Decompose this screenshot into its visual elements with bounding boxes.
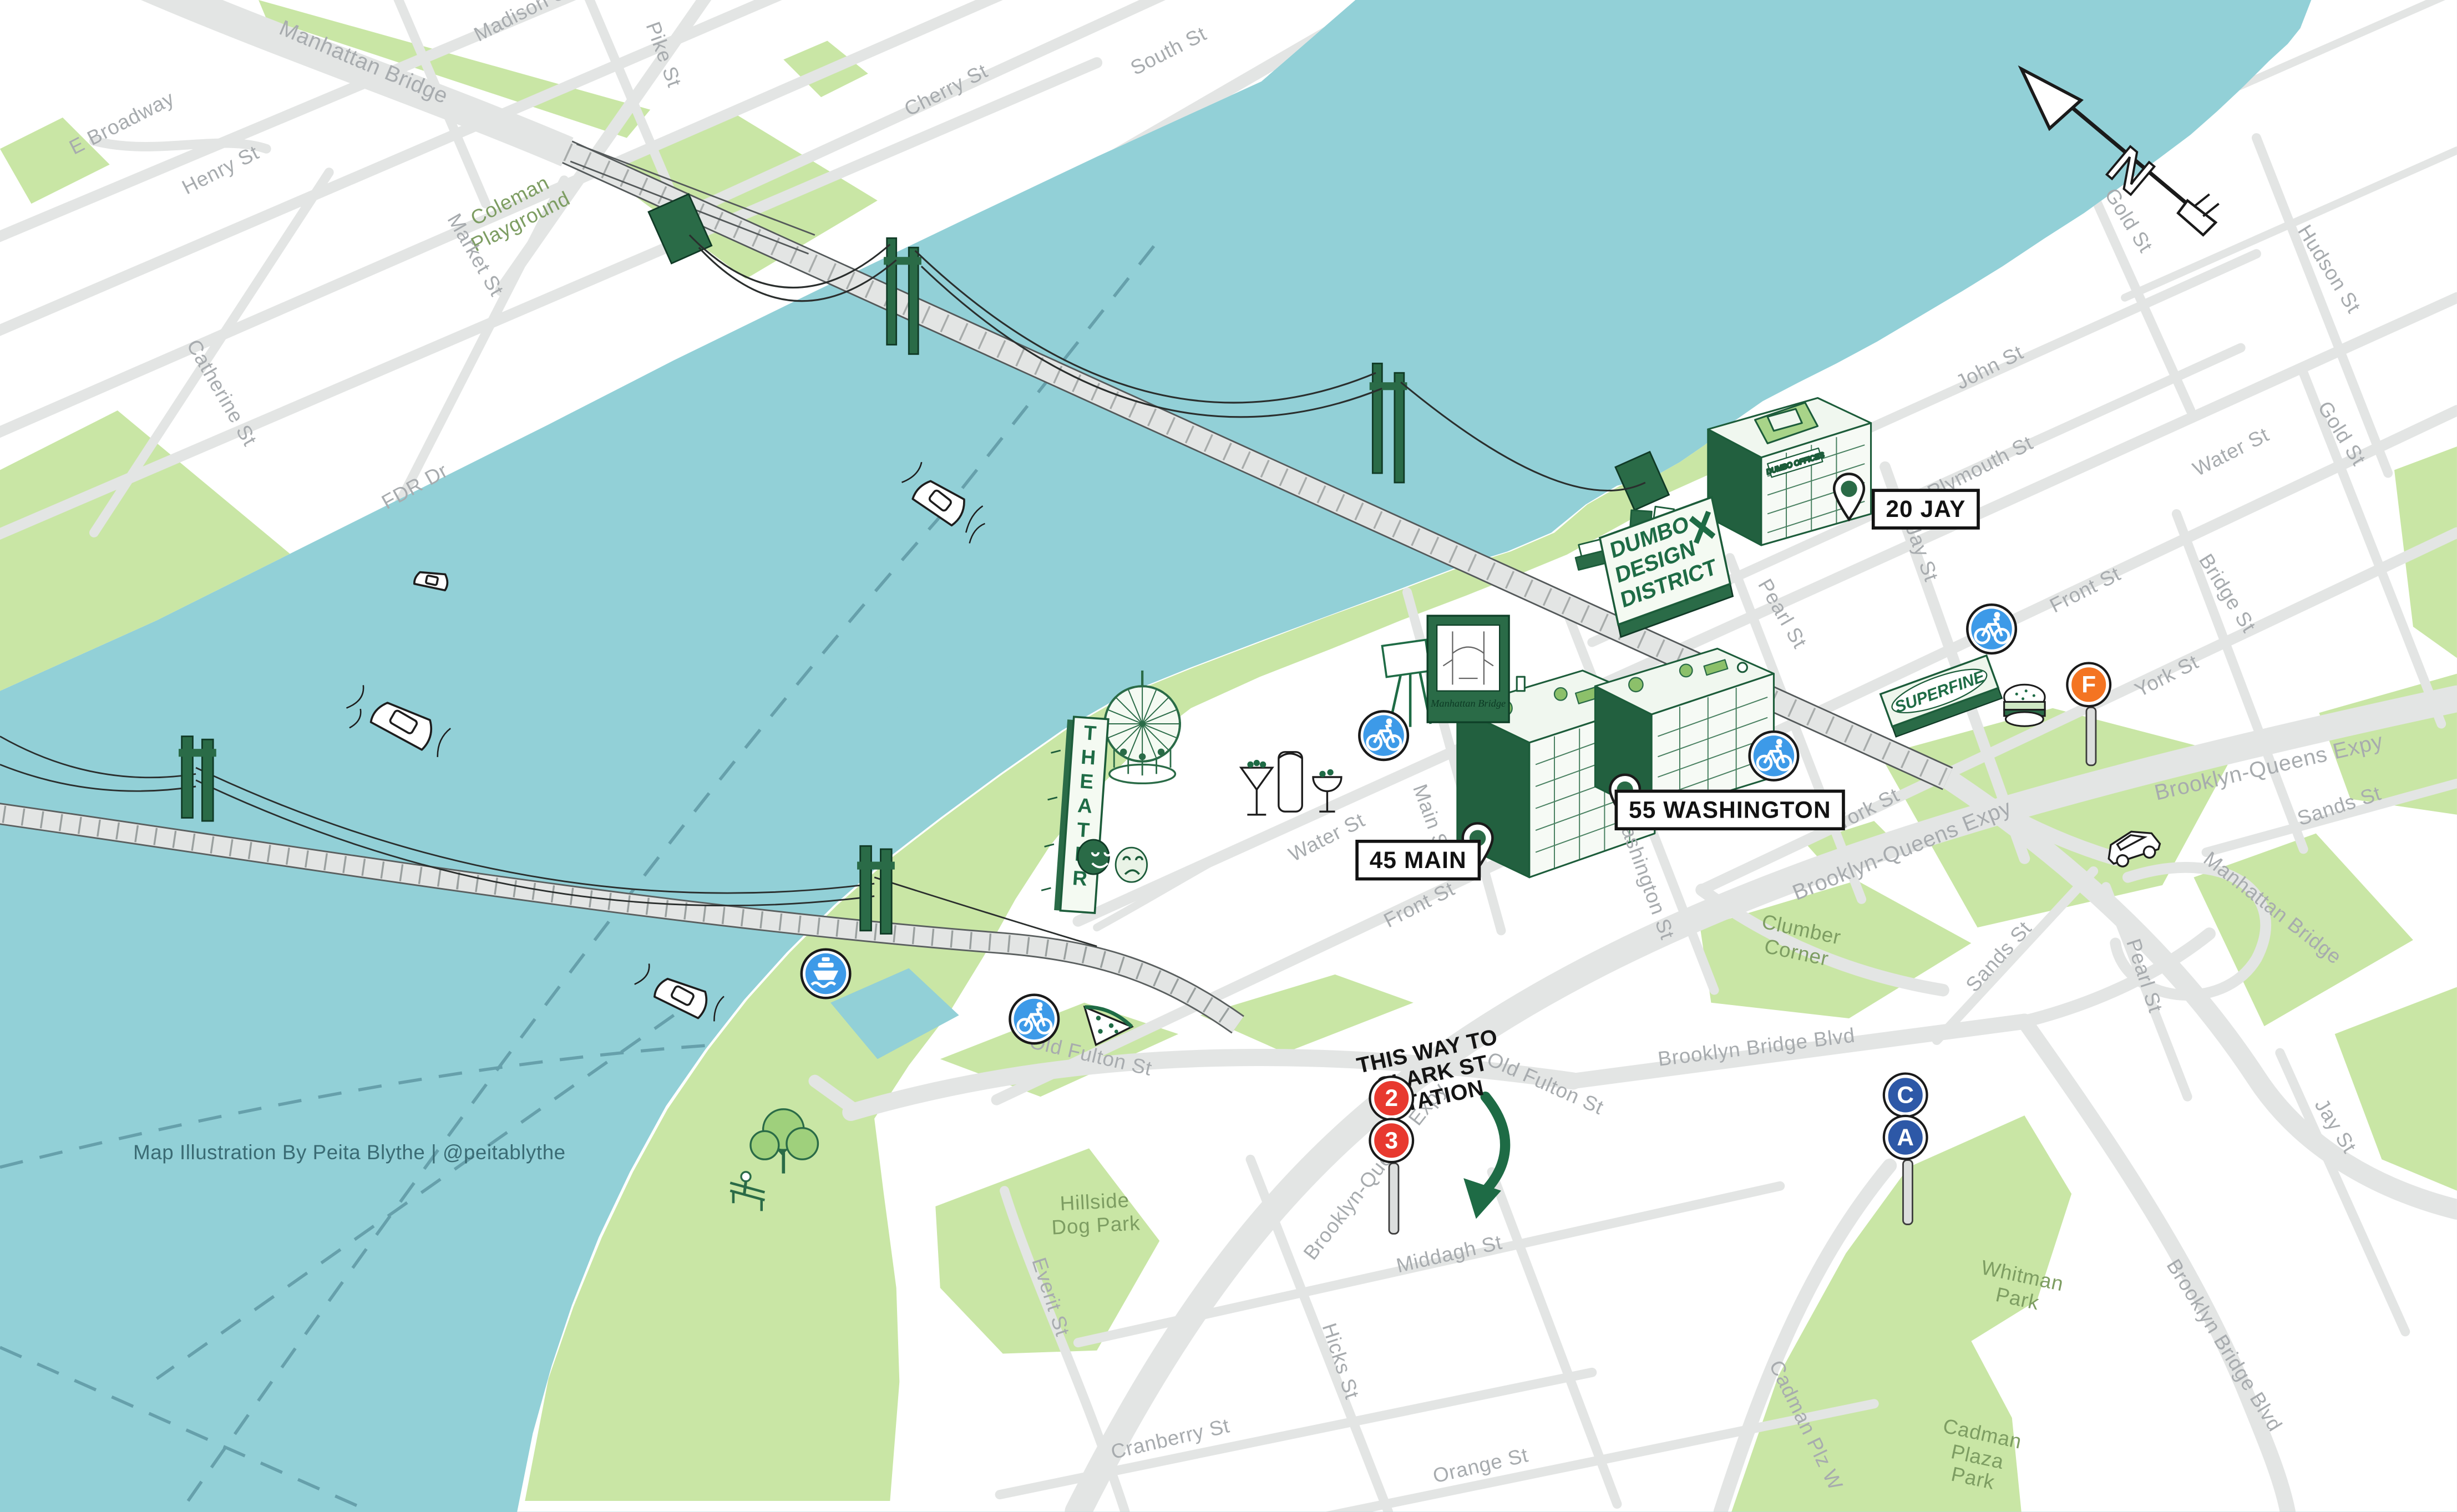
street-label: Jay St: [1900, 521, 1942, 585]
subway-marker: 23: [1371, 1078, 1412, 1161]
bike-sign-icon: [1965, 602, 2018, 656]
street-label: Manhattan Bridge: [276, 16, 452, 109]
street-label: Gold St: [2099, 185, 2156, 257]
street-label: Brooklyn Bridge Blvd: [1656, 1024, 1856, 1071]
street-label: Front St: [2046, 563, 2125, 618]
bike-sign-icon: [1747, 729, 1800, 783]
street-label: Water St: [2190, 424, 2273, 481]
street-label: Manhattan Bridge: [2198, 848, 2345, 970]
street-label: Jay St: [2309, 1095, 2360, 1158]
street-label: Henry St: [179, 142, 263, 200]
ferry-sign: [799, 947, 853, 1008]
street-label: South St: [1127, 23, 1210, 80]
street-label: Gold St: [2313, 398, 2370, 470]
subway-marker: CA: [1885, 1075, 1926, 1158]
dumbo-illustrated-map: DUMBO OFFICES DUMBO DESIGN DISTRICT SUPE…: [0, 0, 2457, 1512]
bike-sign: [1965, 602, 2018, 663]
street-label: Everit St: [1026, 1255, 1073, 1340]
street-label: Cadman Plz W: [1764, 1357, 1847, 1494]
park-label: Clumber Corner: [1755, 911, 1843, 972]
street-label: John St: [1953, 342, 2028, 395]
ferry-sign-icon: [799, 947, 853, 1000]
street-label: Catherine St: [181, 336, 261, 450]
attribution: Map Illustration By Peita Blythe | @peit…: [133, 1140, 566, 1164]
street-label: York St: [2131, 651, 2202, 702]
street-label: Brooklyn Bridge Blvd: [2161, 1256, 2286, 1436]
subway-sign-post: [2085, 707, 2096, 766]
bike-sign-icon: [1007, 992, 1061, 1046]
map-pin-icon: [1830, 473, 1868, 522]
street-label: Sands St: [1962, 917, 2037, 997]
label-overlay: Map Illustration By Peita Blythe | @peit…: [0, 0, 2457, 1512]
park-label: Whitman Park: [1974, 1257, 2066, 1319]
subway-sign-post: [1902, 1159, 1913, 1225]
street-label: Middagh St: [1395, 1232, 1505, 1278]
map-pin: [1830, 473, 1868, 531]
landmark-label: 20 JAY: [1872, 489, 1980, 529]
bike-sign: [1747, 729, 1800, 790]
street-label: Sands St: [2295, 783, 2384, 831]
street-label: FDR Dr: [378, 460, 452, 515]
street-label: Orange St: [1431, 1444, 1531, 1488]
street-label: Bridge St: [2193, 550, 2260, 637]
street-label: Cranberry St: [1109, 1415, 1232, 1464]
subway-sign-post: [1387, 1163, 1399, 1235]
subway-badge: 2: [1371, 1078, 1412, 1118]
landmark-label: 45 MAIN: [1355, 840, 1481, 880]
street-label: Pearl St: [2121, 936, 2166, 1016]
park-label: Cadman Plaza Park: [1931, 1415, 2023, 1499]
bike-sign: [1007, 992, 1061, 1053]
bike-sign-icon: [1357, 709, 1410, 762]
street-label: Cherry St: [901, 60, 992, 121]
park-label: Hillside Dog Park: [1050, 1189, 1141, 1239]
landmark-label: 55 WASHINGTON: [1615, 790, 1846, 830]
subway-badge: 3: [1371, 1120, 1412, 1161]
subway-badge: C: [1885, 1075, 1926, 1115]
subway-badge: F: [2068, 664, 2109, 705]
street-label: Hudson St: [2292, 221, 2364, 318]
street-label: E Broadway: [66, 88, 179, 160]
street-label: Madison St: [470, 0, 576, 47]
street-label: Pearl St: [1752, 575, 1810, 653]
street-label: Hicks St: [1317, 1321, 1363, 1402]
street-label: Pike St: [641, 19, 685, 90]
subway-marker: F: [2068, 664, 2109, 705]
bike-sign: [1357, 709, 1410, 770]
street-label: Front St: [1381, 878, 1459, 933]
subway-badge: A: [1885, 1117, 1926, 1158]
